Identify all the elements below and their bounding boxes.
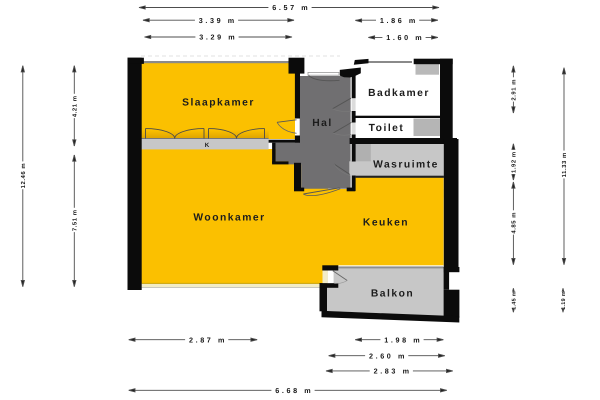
svg-text:1.19 m: 1.19 m [561, 291, 567, 310]
svg-text:1.98 m: 1.98 m [384, 335, 422, 344]
svg-text:1.60 m: 1.60 m [386, 33, 424, 42]
svg-text:K: K [205, 142, 210, 149]
svg-text:Slaapkamer: Slaapkamer [182, 98, 255, 109]
svg-text:6.68 m: 6.68 m [275, 386, 313, 395]
svg-text:3.39 m: 3.39 m [199, 16, 237, 25]
svg-text:Keuken: Keuken [363, 218, 409, 229]
svg-text:2.83 m: 2.83 m [374, 367, 412, 376]
svg-text:1.92 m: 1.92 m [511, 151, 518, 173]
svg-text:7.51 m: 7.51 m [72, 209, 79, 231]
svg-text:Toilet: Toilet [369, 123, 405, 134]
svg-text:2.60 m: 2.60 m [369, 351, 407, 360]
svg-text:12.46 m: 12.46 m [20, 163, 27, 188]
svg-text:Wasruimte: Wasruimte [373, 160, 439, 171]
svg-text:11.33 m: 11.33 m [561, 152, 568, 177]
svg-text:4.85 m: 4.85 m [511, 212, 518, 234]
svg-text:1.45 m: 1.45 m [512, 291, 518, 310]
svg-text:2.91 m: 2.91 m [511, 79, 518, 101]
svg-text:Badkamer: Badkamer [368, 88, 430, 99]
svg-text:Woonkamer: Woonkamer [193, 213, 265, 224]
svg-text:Hal: Hal [312, 118, 333, 129]
svg-text:4.21 m: 4.21 m [72, 95, 79, 117]
svg-text:6.57 m: 6.57 m [272, 3, 310, 12]
svg-text:1.86 m: 1.86 m [380, 16, 418, 25]
svg-text:2.87 m: 2.87 m [189, 335, 227, 344]
svg-text:Balkon: Balkon [371, 289, 414, 300]
svg-text:3.29 m: 3.29 m [199, 33, 237, 42]
